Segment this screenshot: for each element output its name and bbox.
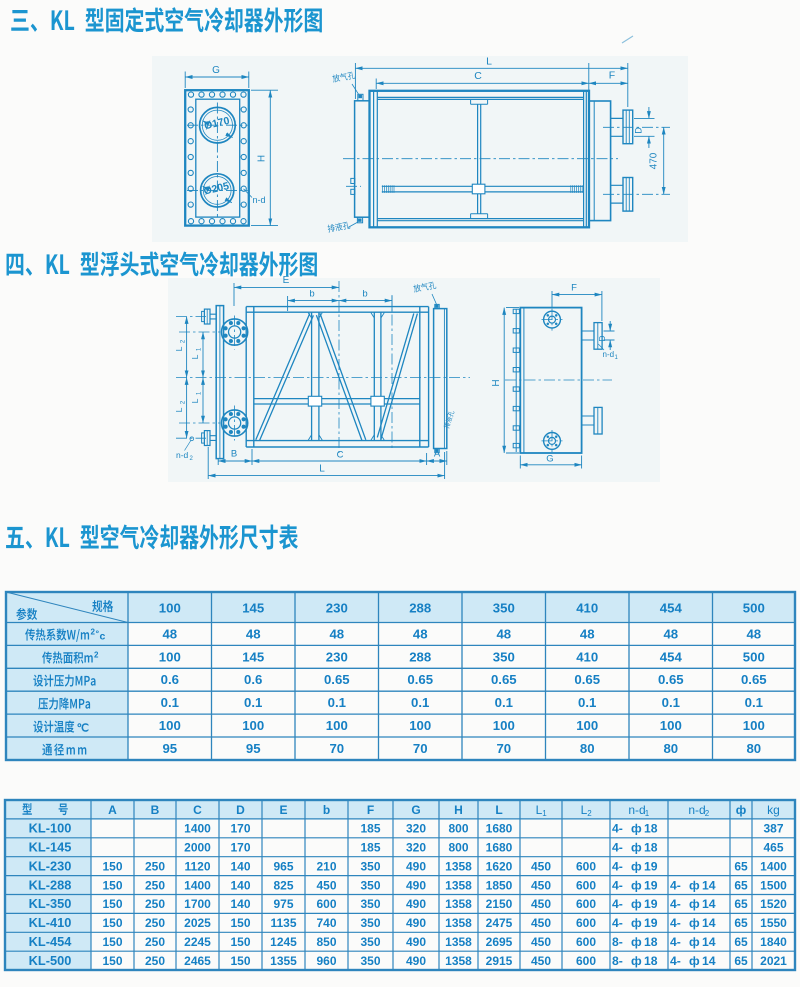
svg-text:288: 288 [409, 601, 431, 616]
svg-text:2465: 2465 [184, 954, 211, 968]
svg-text:14: 14 [702, 916, 716, 930]
svg-text:490: 490 [406, 860, 426, 874]
svg-text:70: 70 [413, 741, 428, 756]
svg-text:c: c [100, 631, 106, 643]
svg-text:150: 150 [102, 897, 122, 911]
svg-text:185: 185 [360, 822, 380, 836]
svg-text:490: 490 [406, 897, 426, 911]
svg-text:800: 800 [448, 822, 468, 836]
svg-text:14: 14 [702, 878, 716, 892]
svg-text:ф: ф [631, 935, 642, 949]
svg-text:100: 100 [743, 718, 765, 733]
svg-text:65: 65 [734, 954, 748, 968]
svg-text:825: 825 [273, 878, 293, 892]
svg-text:320: 320 [406, 841, 426, 855]
svg-text:490: 490 [406, 935, 426, 949]
svg-text:ф: ф [689, 878, 700, 892]
svg-text:19: 19 [644, 878, 658, 892]
svg-text:80: 80 [663, 741, 678, 756]
svg-text:450: 450 [531, 916, 551, 930]
svg-text:2: 2 [587, 809, 592, 818]
svg-text:0.1: 0.1 [411, 695, 429, 710]
svg-text:150: 150 [102, 954, 122, 968]
svg-text:65: 65 [734, 935, 748, 949]
svg-text:800: 800 [448, 841, 468, 855]
svg-text:600: 600 [576, 916, 596, 930]
svg-text:18: 18 [644, 935, 658, 949]
svg-text:℃: ℃ [77, 723, 89, 735]
svg-text:70: 70 [329, 741, 344, 756]
svg-text:465: 465 [763, 841, 783, 855]
svg-text:2: 2 [705, 809, 710, 818]
svg-text:48: 48 [663, 627, 678, 642]
svg-text:450: 450 [531, 897, 551, 911]
svg-text:ф: ф [689, 916, 700, 930]
svg-text:350: 350 [360, 935, 380, 949]
svg-text:ф: ф [631, 954, 642, 968]
svg-text:150: 150 [230, 935, 250, 949]
svg-text:L: L [174, 346, 184, 351]
svg-text:E: E [279, 803, 287, 817]
svg-text:F: F [367, 803, 374, 817]
svg-text:600: 600 [576, 954, 596, 968]
svg-text:1355: 1355 [270, 954, 297, 968]
svg-text:490: 490 [406, 878, 426, 892]
svg-text:48: 48 [246, 627, 261, 642]
svg-text:48: 48 [580, 627, 595, 642]
svg-text:ф: ф [736, 803, 747, 817]
svg-text:C: C [193, 803, 202, 817]
svg-text:L: L [190, 354, 200, 359]
svg-text:350: 350 [360, 954, 380, 968]
svg-text:ф: ф [631, 878, 642, 892]
svg-text:1120: 1120 [184, 860, 210, 874]
svg-text:ф: ф [689, 954, 700, 968]
svg-text:95: 95 [246, 741, 261, 756]
svg-text:1135: 1135 [270, 916, 296, 930]
svg-text:n-d: n-d [253, 195, 266, 205]
svg-text:1400: 1400 [184, 878, 211, 892]
svg-text:250: 250 [145, 878, 165, 892]
svg-text:0.1: 0.1 [161, 695, 179, 710]
svg-text:A: A [434, 449, 441, 460]
svg-text:145: 145 [242, 601, 264, 616]
svg-text:1358: 1358 [445, 954, 472, 968]
svg-text:H: H [454, 803, 463, 817]
svg-text:H: H [491, 379, 502, 386]
svg-text:0.65: 0.65 [324, 672, 350, 687]
svg-text:170: 170 [230, 822, 250, 836]
svg-text:65: 65 [734, 860, 748, 874]
svg-text:KL-145: KL-145 [29, 840, 72, 855]
svg-text:C: C [337, 450, 344, 461]
svg-text:14: 14 [702, 897, 716, 911]
svg-text:65: 65 [734, 878, 748, 892]
svg-text:145: 145 [242, 649, 264, 664]
svg-text:48: 48 [162, 627, 177, 642]
svg-text:450: 450 [531, 860, 551, 874]
svg-text:ф: ф [631, 860, 642, 874]
svg-text:2025: 2025 [184, 916, 211, 930]
svg-text:b: b [362, 289, 367, 300]
svg-text:1358: 1358 [445, 897, 472, 911]
svg-text:ф: ф [689, 897, 700, 911]
svg-text:19: 19 [644, 916, 658, 930]
svg-text:250: 250 [145, 935, 165, 949]
svg-text:48: 48 [329, 627, 344, 642]
svg-text:100: 100 [660, 718, 682, 733]
svg-text:n-d: n-d [603, 350, 615, 359]
svg-text:2245: 2245 [184, 935, 211, 949]
svg-text:ф: ф [631, 897, 642, 911]
svg-text:KL-410: KL-410 [29, 915, 72, 930]
svg-text:b: b [309, 289, 314, 300]
svg-text:1: 1 [542, 809, 547, 818]
svg-text:KL-500: KL-500 [29, 953, 72, 968]
svg-text:0.65: 0.65 [658, 672, 684, 687]
svg-text:2: 2 [94, 651, 99, 660]
svg-text:ф: ф [689, 935, 700, 949]
svg-text:150: 150 [230, 916, 250, 930]
svg-text:320: 320 [406, 822, 426, 836]
svg-text:454: 454 [660, 601, 683, 616]
svg-text:14: 14 [702, 954, 716, 968]
svg-text:95: 95 [162, 741, 177, 756]
svg-text:100: 100 [576, 718, 598, 733]
svg-text:A: A [108, 803, 117, 817]
svg-text:150: 150 [102, 878, 122, 892]
svg-text:1680: 1680 [486, 822, 513, 836]
svg-text:D: D [236, 803, 245, 817]
svg-text:4-: 4- [612, 860, 623, 874]
svg-text:F: F [609, 70, 615, 82]
svg-text:ф: ф [631, 822, 642, 836]
svg-text:1700: 1700 [184, 897, 211, 911]
svg-text:n-d: n-d [688, 803, 705, 817]
svg-text:140: 140 [230, 878, 250, 892]
svg-text:0.1: 0.1 [578, 695, 596, 710]
svg-text:0.65: 0.65 [741, 672, 767, 687]
svg-text:2695: 2695 [486, 935, 513, 949]
svg-text:KL-350: KL-350 [29, 896, 72, 911]
svg-text:150: 150 [102, 860, 122, 874]
svg-text:E: E [283, 275, 290, 286]
svg-text:1358: 1358 [445, 860, 472, 874]
svg-text:350: 350 [493, 601, 515, 616]
svg-text:100: 100 [242, 718, 264, 733]
svg-text:48: 48 [413, 627, 428, 642]
svg-text:350: 350 [493, 649, 515, 664]
svg-text:G: G [411, 803, 420, 817]
svg-text:1245: 1245 [270, 935, 297, 949]
svg-text:230: 230 [326, 601, 348, 616]
svg-text:470: 470 [649, 152, 660, 169]
svg-text:ф: ф [631, 916, 642, 930]
svg-text:8-: 8- [612, 954, 623, 968]
svg-text:2021: 2021 [760, 954, 787, 968]
svg-text:600: 600 [576, 935, 596, 949]
svg-text:L: L [319, 464, 325, 475]
svg-text:19: 19 [644, 860, 658, 874]
svg-text:960: 960 [316, 954, 336, 968]
svg-text:450: 450 [531, 954, 551, 968]
svg-text:n-d: n-d [176, 450, 189, 460]
svg-text:1358: 1358 [445, 916, 472, 930]
svg-text:600: 600 [316, 897, 336, 911]
svg-text:B: B [231, 449, 237, 460]
svg-text:965: 965 [273, 860, 293, 874]
svg-text:490: 490 [406, 916, 426, 930]
svg-text:1358: 1358 [445, 935, 472, 949]
svg-text:1840: 1840 [760, 935, 787, 949]
svg-text:1550: 1550 [760, 916, 787, 930]
svg-text:0.1: 0.1 [495, 695, 513, 710]
svg-text:L: L [174, 407, 184, 412]
svg-text:ф: ф [631, 841, 642, 855]
svg-text:1520: 1520 [760, 897, 787, 911]
svg-text:70: 70 [496, 741, 511, 756]
svg-text:65: 65 [734, 916, 748, 930]
svg-text:4-: 4- [670, 897, 681, 911]
svg-text:490: 490 [406, 954, 426, 968]
svg-text:2475: 2475 [486, 916, 513, 930]
svg-text:0.1: 0.1 [244, 695, 262, 710]
svg-text:410: 410 [576, 649, 598, 664]
svg-text:18: 18 [644, 822, 658, 836]
svg-text:B: B [151, 803, 160, 817]
svg-text:250: 250 [145, 916, 165, 930]
svg-text:100: 100 [159, 601, 181, 616]
svg-text:1850: 1850 [486, 878, 513, 892]
svg-text:600: 600 [576, 897, 596, 911]
svg-text:740: 740 [316, 916, 336, 930]
svg-text:48: 48 [746, 627, 761, 642]
svg-text:350: 350 [360, 916, 380, 930]
svg-text:2000: 2000 [184, 841, 211, 855]
svg-text:0.6: 0.6 [161, 672, 179, 687]
svg-text:450: 450 [531, 878, 551, 892]
svg-text:170: 170 [230, 841, 250, 855]
svg-text:600: 600 [576, 860, 596, 874]
svg-text:2915: 2915 [486, 954, 513, 968]
svg-text:450: 450 [531, 935, 551, 949]
svg-text:288: 288 [409, 649, 431, 664]
svg-text:387: 387 [763, 822, 783, 836]
svg-text:250: 250 [145, 954, 165, 968]
svg-text:100: 100 [326, 718, 348, 733]
svg-text:1620: 1620 [486, 860, 513, 874]
svg-text:4-: 4- [612, 878, 623, 892]
svg-text:185: 185 [360, 841, 380, 855]
svg-text:0.65: 0.65 [407, 672, 433, 687]
svg-text:L: L [495, 803, 502, 817]
svg-text:1500: 1500 [760, 878, 787, 892]
svg-text:18: 18 [644, 954, 658, 968]
svg-text:0.1: 0.1 [662, 695, 680, 710]
svg-text:KL-454: KL-454 [29, 934, 73, 949]
svg-text:KL-230: KL-230 [29, 859, 72, 874]
svg-text:4-: 4- [670, 935, 681, 949]
svg-text:350: 350 [360, 897, 380, 911]
svg-text:kg: kg [767, 803, 780, 817]
svg-text:250: 250 [145, 897, 165, 911]
svg-text:19: 19 [644, 897, 658, 911]
svg-text:L: L [190, 398, 200, 403]
svg-text:18: 18 [644, 841, 658, 855]
svg-text:100: 100 [493, 718, 515, 733]
svg-text:230: 230 [326, 649, 348, 664]
svg-text:150: 150 [102, 935, 122, 949]
svg-text:350: 350 [360, 860, 380, 874]
svg-text:C: C [474, 70, 482, 82]
svg-text:1: 1 [645, 809, 650, 818]
svg-text:0.65: 0.65 [491, 672, 517, 687]
svg-text:n-d: n-d [628, 803, 645, 817]
svg-text:4-: 4- [612, 841, 623, 855]
svg-text:F: F [571, 283, 577, 294]
svg-text:4-: 4- [612, 897, 623, 911]
svg-text:1358: 1358 [445, 878, 472, 892]
svg-text:100: 100 [159, 718, 181, 733]
svg-text:4-: 4- [670, 878, 681, 892]
svg-text:1680: 1680 [486, 841, 513, 855]
svg-text:KL-288: KL-288 [29, 877, 72, 892]
svg-text:600: 600 [576, 878, 596, 892]
svg-text:350: 350 [360, 878, 380, 892]
svg-text:b: b [323, 803, 330, 817]
svg-text:975: 975 [273, 897, 293, 911]
svg-text:8-: 8- [612, 935, 623, 949]
svg-text:4-: 4- [670, 916, 681, 930]
svg-text:L: L [486, 56, 492, 68]
svg-text:G: G [212, 65, 220, 76]
svg-text:1400: 1400 [760, 860, 787, 874]
svg-text:140: 140 [230, 860, 250, 874]
svg-text:KL-100: KL-100 [29, 821, 72, 836]
svg-text:D: D [634, 127, 644, 134]
svg-text:H: H [257, 155, 268, 162]
svg-text:2150: 2150 [486, 897, 513, 911]
svg-text:0.1: 0.1 [328, 695, 346, 710]
svg-text:D: D [597, 335, 607, 341]
svg-text:4-: 4- [612, 916, 623, 930]
svg-text:410: 410 [576, 601, 598, 616]
svg-text:100: 100 [159, 649, 181, 664]
svg-text:454: 454 [660, 649, 683, 664]
svg-text:4-: 4- [612, 822, 623, 836]
svg-text:150: 150 [102, 916, 122, 930]
svg-text:850: 850 [316, 935, 336, 949]
svg-text:140: 140 [230, 897, 250, 911]
svg-text:250: 250 [145, 860, 165, 874]
svg-text:80: 80 [746, 741, 761, 756]
svg-text:0.1: 0.1 [745, 695, 763, 710]
svg-text:4-: 4- [670, 954, 681, 968]
svg-text:500: 500 [743, 649, 765, 664]
svg-text:500: 500 [743, 601, 765, 616]
svg-text:1400: 1400 [184, 822, 211, 836]
svg-text:0.6: 0.6 [244, 672, 262, 687]
svg-text:450: 450 [316, 878, 336, 892]
svg-text:65: 65 [734, 897, 748, 911]
svg-text:80: 80 [580, 741, 595, 756]
svg-text:14: 14 [702, 935, 716, 949]
svg-text:150: 150 [230, 954, 250, 968]
svg-text:0.65: 0.65 [574, 672, 600, 687]
svg-text:G: G [546, 454, 553, 465]
svg-text:48: 48 [496, 627, 511, 642]
svg-text:100: 100 [409, 718, 431, 733]
svg-text:210: 210 [316, 860, 336, 874]
